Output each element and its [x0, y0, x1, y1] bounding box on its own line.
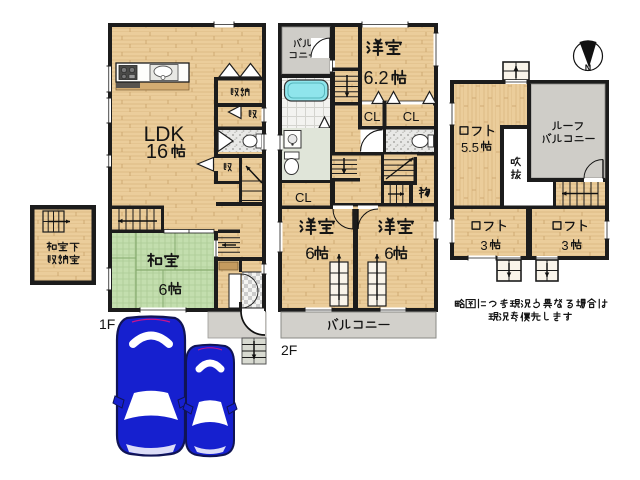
svg-text:2F: 2F [281, 342, 297, 358]
svg-text:5.5: 5.5 [461, 140, 479, 155]
svg-text:6.2: 6.2 [363, 68, 388, 88]
svg-text:CL: CL [295, 190, 312, 205]
svg-text:N: N [585, 63, 592, 73]
svg-text:3: 3 [561, 238, 568, 253]
svg-text:6: 6 [159, 282, 168, 299]
svg-text:6: 6 [305, 244, 314, 263]
svg-text:16: 16 [146, 141, 168, 163]
svg-text:1F: 1F [99, 316, 115, 332]
svg-text:CL: CL [403, 109, 420, 124]
svg-text:6: 6 [384, 244, 393, 263]
svg-text:3: 3 [480, 238, 487, 253]
svg-text:CL: CL [364, 109, 381, 124]
